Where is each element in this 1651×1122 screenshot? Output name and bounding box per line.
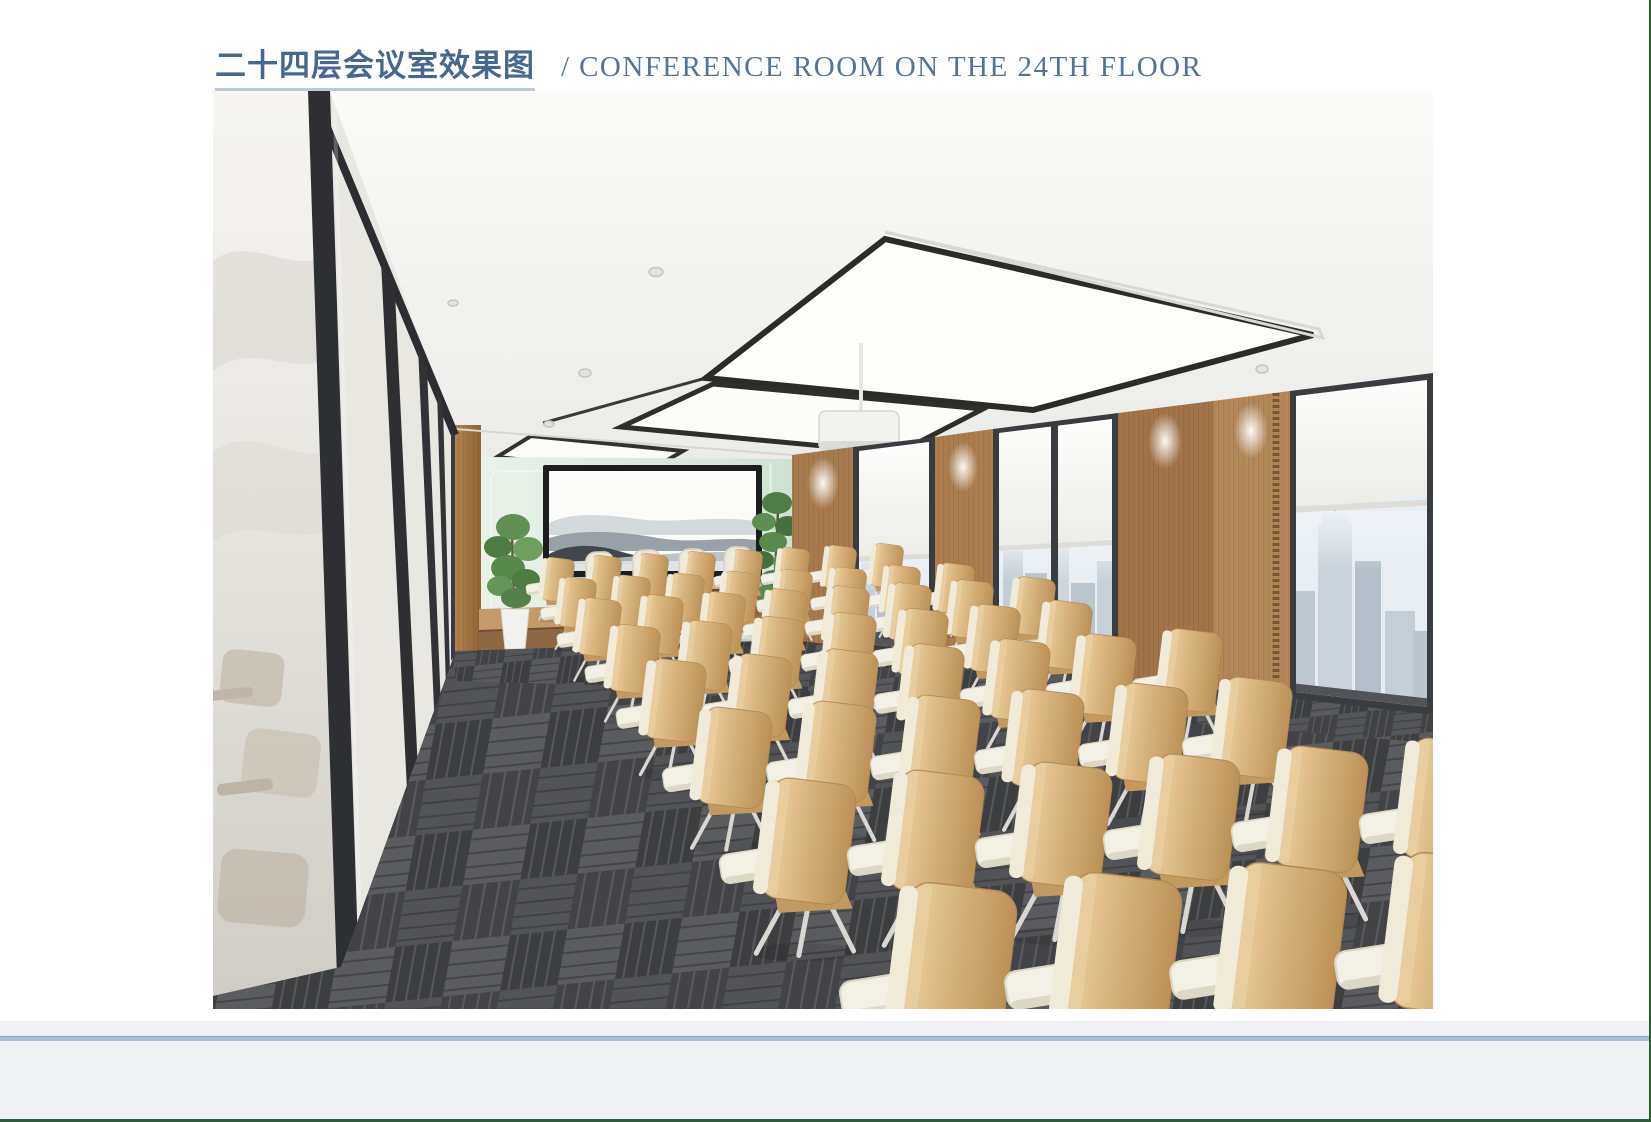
page-footer	[0, 1021, 1651, 1122]
title-divider: /	[561, 51, 569, 84]
document-page: 二十四层会议室效果图 / CONFERENCE ROOM ON THE 24TH…	[0, 0, 1651, 1122]
render-svg	[213, 91, 1433, 1009]
window-3	[1290, 373, 1433, 715]
footer-divider-line	[0, 1036, 1651, 1041]
page-title: 二十四层会议室效果图 / CONFERENCE ROOM ON THE 24TH…	[215, 40, 1202, 91]
page-header: 二十四层会议室效果图 / CONFERENCE ROOM ON THE 24TH…	[215, 40, 1202, 91]
title-english: CONFERENCE ROOM ON THE 24TH FLOOR	[579, 51, 1202, 84]
conference-room-rendering	[213, 91, 1433, 1009]
title-chinese: 二十四层会议室效果图	[215, 40, 535, 91]
